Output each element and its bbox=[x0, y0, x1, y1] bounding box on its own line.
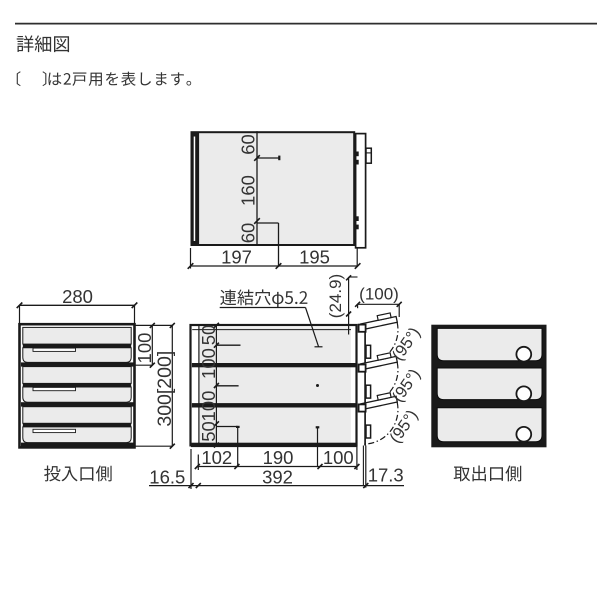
svg-text:100: 100 bbox=[323, 447, 354, 468]
svg-text:(100): (100) bbox=[359, 285, 399, 304]
svg-text:60: 60 bbox=[237, 134, 258, 155]
svg-text:195: 195 bbox=[299, 247, 330, 268]
svg-text:280: 280 bbox=[62, 286, 93, 307]
svg-text:392: 392 bbox=[262, 466, 293, 487]
svg-text:100: 100 bbox=[134, 333, 155, 364]
svg-text:100: 100 bbox=[198, 391, 219, 422]
svg-text:50: 50 bbox=[198, 325, 219, 346]
svg-text:16.5: 16.5 bbox=[149, 466, 185, 487]
svg-text:17.3: 17.3 bbox=[368, 465, 404, 486]
svg-text:197: 197 bbox=[221, 247, 252, 268]
svg-text:(24.9): (24.9) bbox=[326, 274, 345, 318]
svg-text:102: 102 bbox=[201, 447, 232, 468]
svg-text:50: 50 bbox=[198, 421, 219, 442]
svg-text:100: 100 bbox=[198, 348, 219, 379]
svg-text:160: 160 bbox=[237, 175, 258, 206]
svg-text:60: 60 bbox=[237, 223, 258, 244]
svg-text:190: 190 bbox=[263, 447, 294, 468]
svg-text:300[200]: 300[200] bbox=[154, 351, 176, 427]
